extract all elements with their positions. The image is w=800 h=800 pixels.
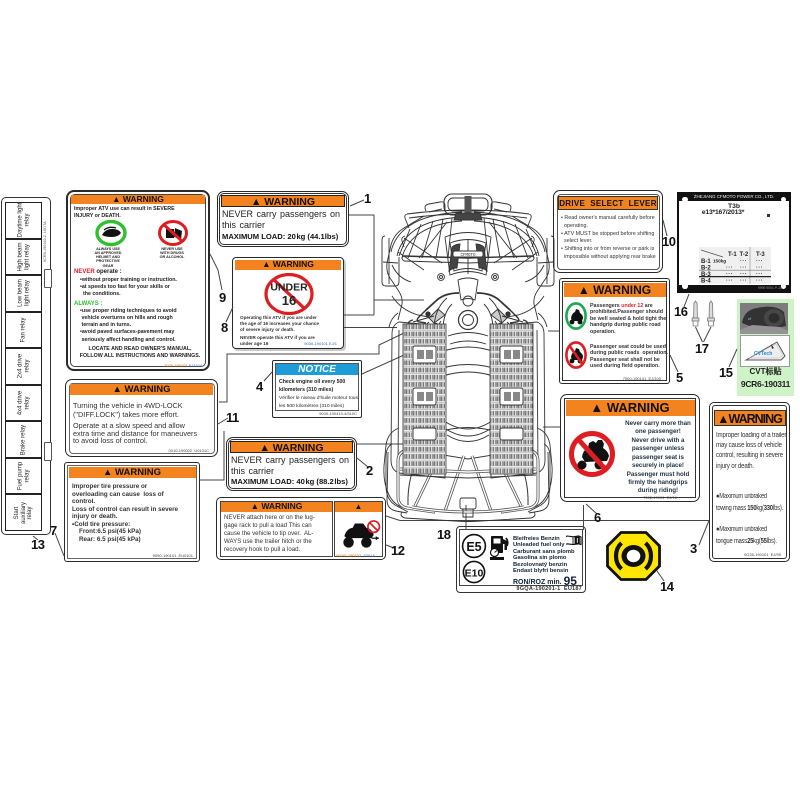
- svg-text:CFMOTO: CFMOTO: [460, 254, 476, 258]
